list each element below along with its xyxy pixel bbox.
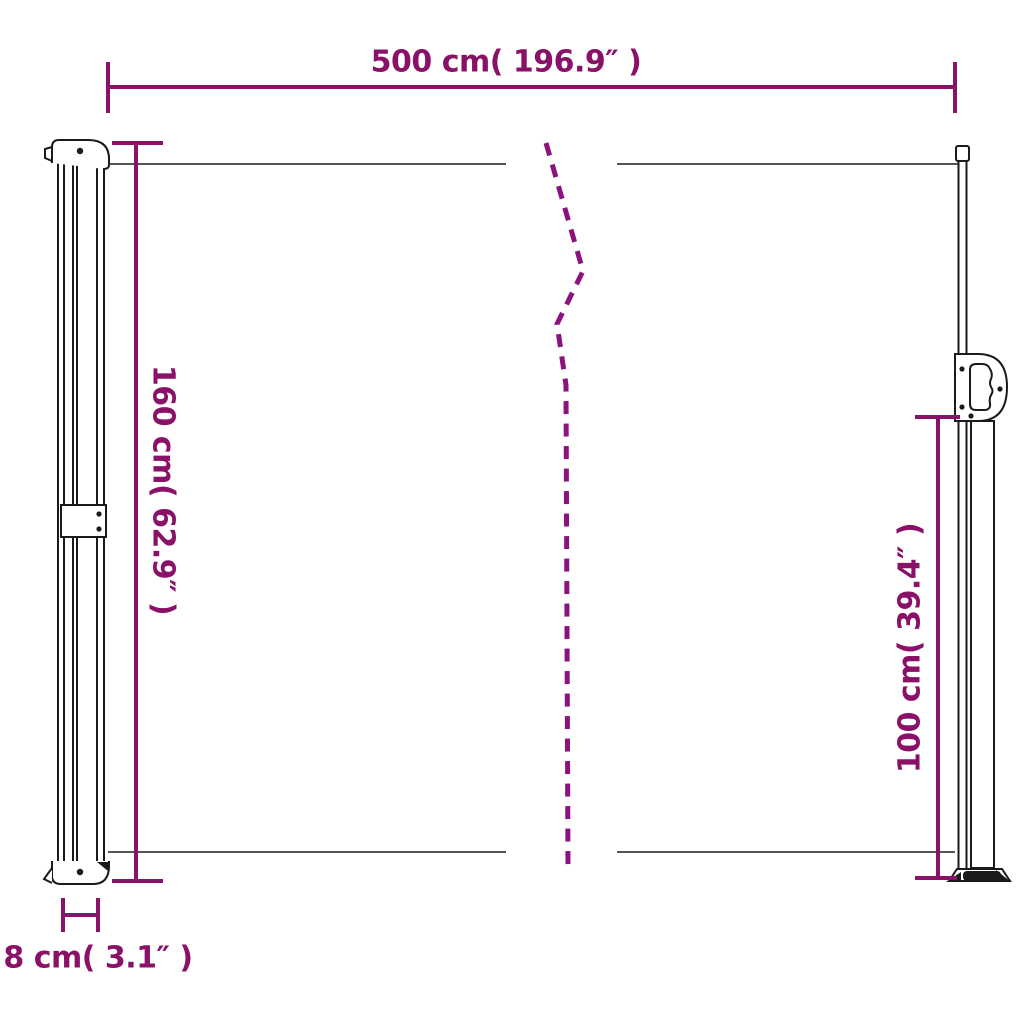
awning-fabric-edges [106, 164, 958, 852]
cassette-top-cap [52, 140, 109, 169]
lead-rail-cap [956, 146, 969, 161]
screw-dot [959, 366, 964, 371]
base-socket [963, 871, 1001, 881]
right-height-dimension-label: 100 cm( 39.4″ ) [893, 523, 928, 773]
handle-grip-cutout [970, 364, 993, 410]
screw-dot [77, 148, 83, 154]
screw-dot [96, 511, 101, 516]
cassette-bottom-tab [44, 868, 52, 883]
cassette-post [44, 140, 109, 884]
product-dimension-diagram: 500 cm( 196.9″ ) 160 cm( 62.9″ ) 100 cm(… [0, 0, 1024, 1024]
depth-dimension [63, 898, 98, 932]
screw-dot [96, 526, 101, 531]
break-line [546, 143, 583, 870]
screw-dot [77, 869, 83, 875]
screw-dot [968, 413, 973, 418]
cassette-clamp [61, 505, 106, 537]
depth-dimension-label: 8 cm( 3.1″ ) [3, 941, 192, 976]
support-pole [946, 146, 1011, 882]
pole-tube [971, 421, 994, 868]
width-dimension-label: 500 cm( 196.9″ ) [371, 45, 642, 80]
cassette-top-tab [45, 147, 52, 161]
screw-dot [997, 386, 1002, 391]
screw-dot [959, 404, 964, 409]
left-height-dimension-label: 160 cm( 62.9″ ) [146, 365, 181, 615]
